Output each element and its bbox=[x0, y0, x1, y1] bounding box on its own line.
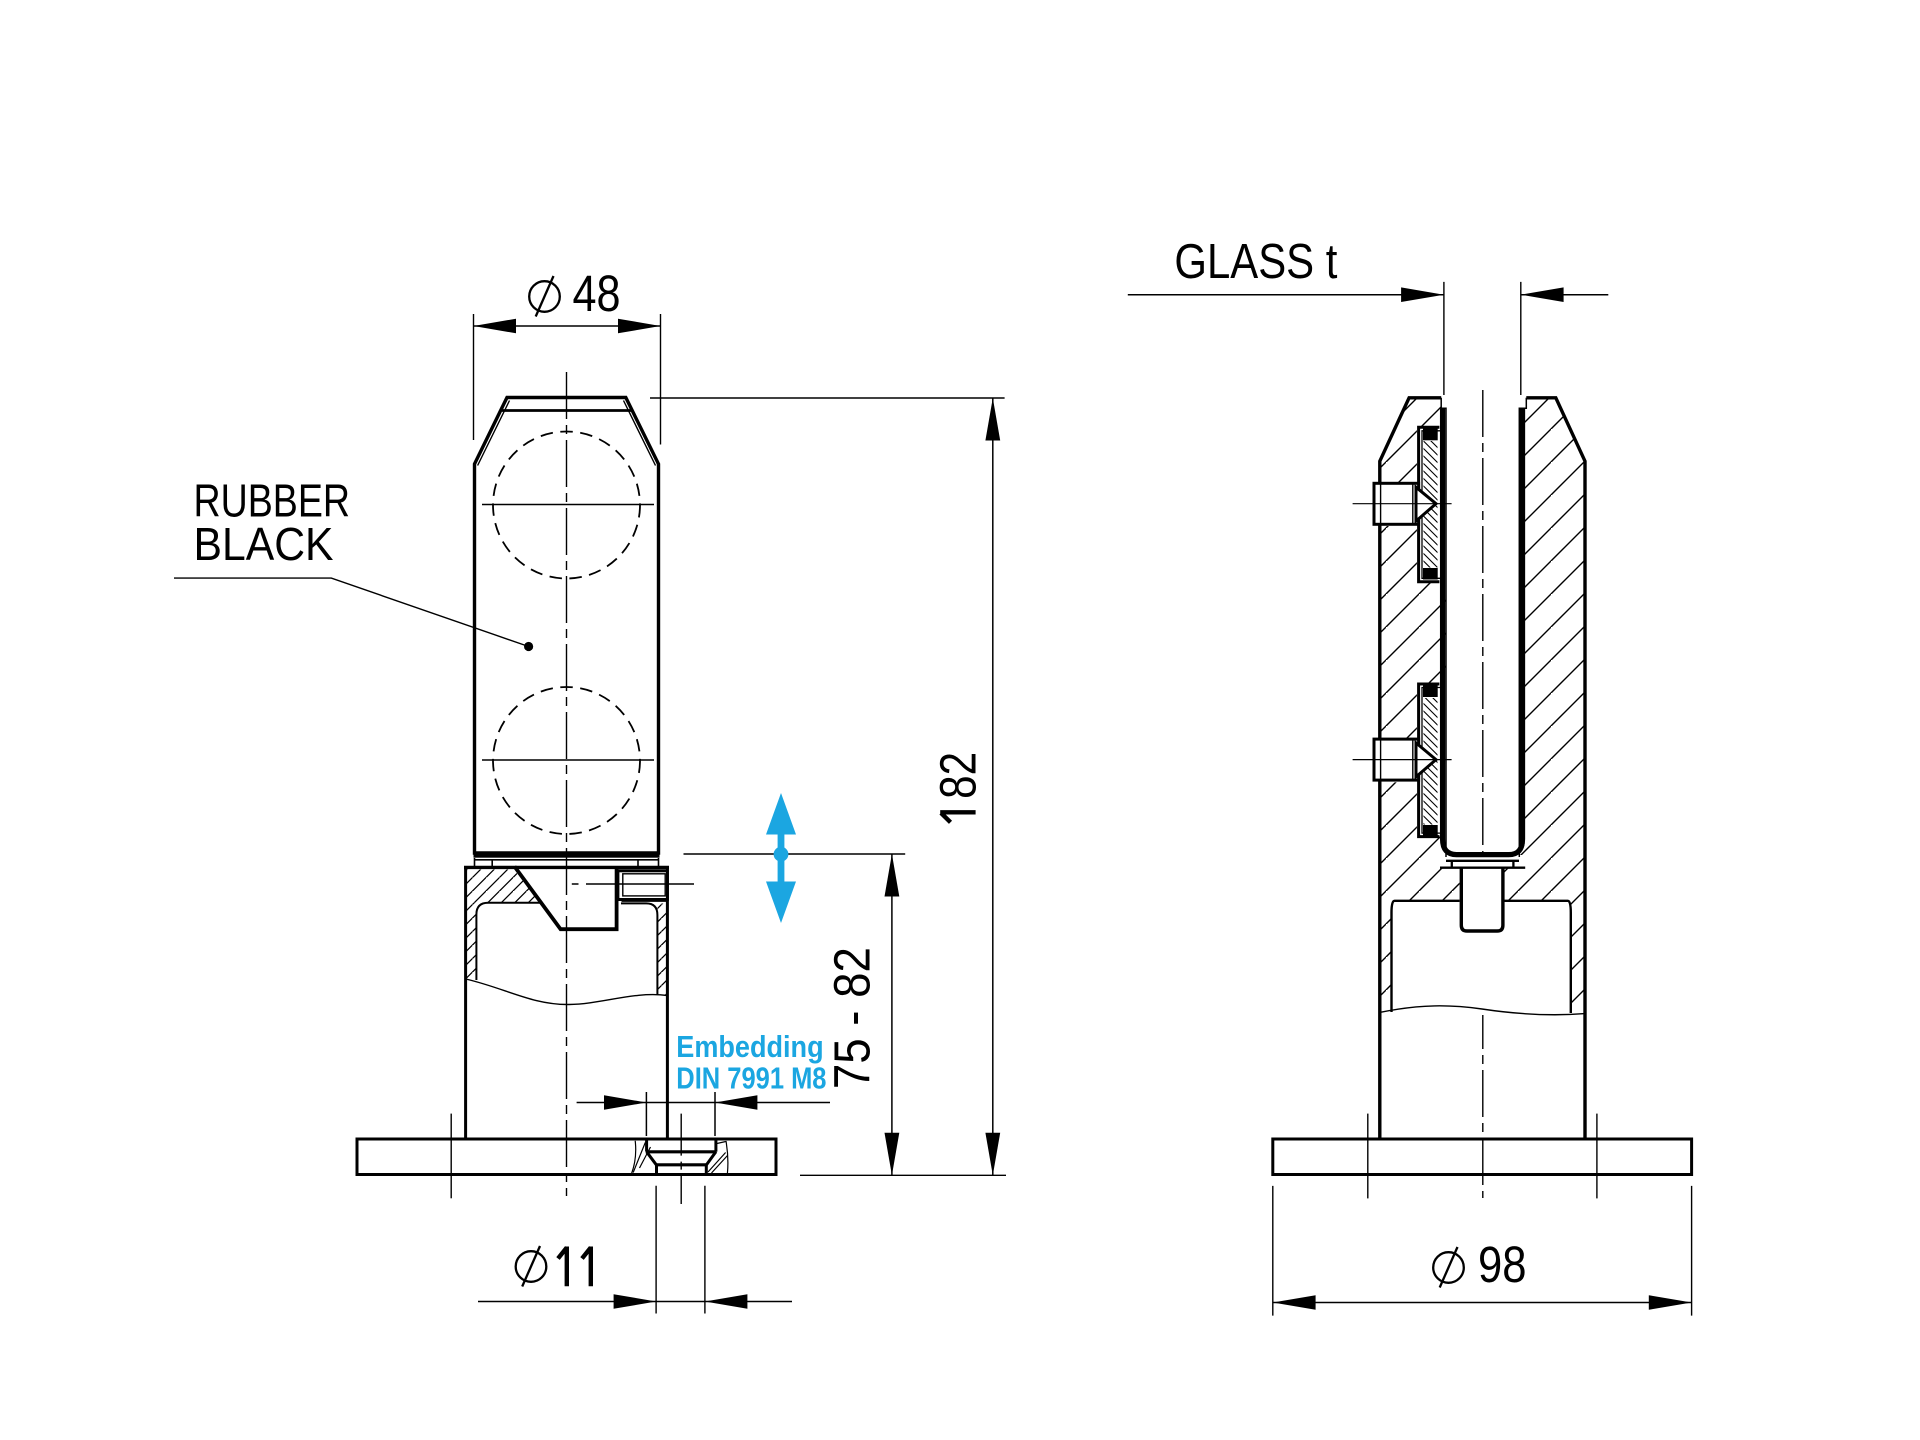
svg-text:BLACK: BLACK bbox=[194, 518, 334, 570]
svg-text:Embedding: Embedding bbox=[676, 1030, 823, 1064]
svg-text:82: 82 bbox=[930, 752, 987, 799]
svg-text:DIN 7991 M8: DIN 7991 M8 bbox=[676, 1062, 826, 1096]
svg-text:48: 48 bbox=[573, 265, 621, 322]
svg-text:98: 98 bbox=[1478, 1236, 1527, 1293]
svg-text:75 - 82: 75 - 82 bbox=[823, 947, 880, 1089]
svg-text:GLASS t: GLASS t bbox=[1174, 235, 1337, 289]
